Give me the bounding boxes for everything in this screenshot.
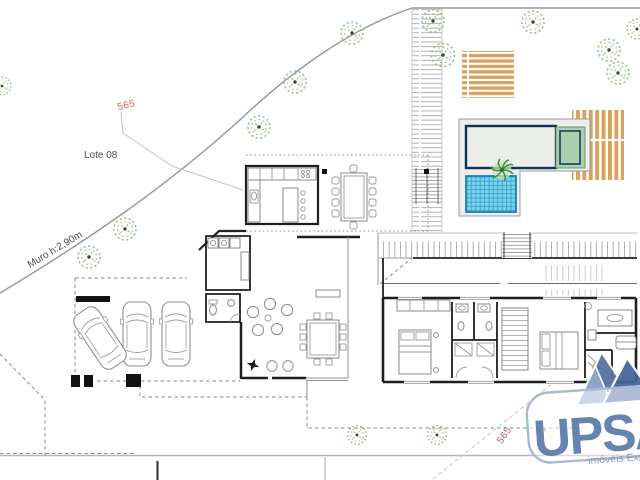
dining-table [300,313,346,365]
column [424,169,429,174]
terrace-band [378,232,637,296]
wood-deck-top [462,51,514,98]
lot-label: Lote 08 [84,150,118,161]
car [68,302,131,374]
gourmet-dining-table [332,165,376,229]
street-number-top: 565 [116,98,136,113]
tree-icon [598,39,620,61]
parked-cars [68,302,192,374]
walkway-strip [412,9,442,233]
site-plan-drawing: 565 565 Lote 08 Muro h:2,90m UPSA imóvei… [0,0,640,480]
pool-area [459,51,624,216]
tree-icon [248,116,270,138]
wall-note: Muro h:2,90m [26,229,85,270]
column [71,375,80,387]
living-block [199,231,360,381]
stairs-terrace [502,232,532,258]
laundry-appliances [208,238,249,280]
tree-icon [78,246,100,268]
kitchen-wing [246,155,429,231]
column [322,169,327,174]
tree-icon [114,218,136,240]
tree-icon [607,62,629,84]
wall-stub [76,296,110,302]
tree-icon [0,77,11,95]
bed [397,300,450,374]
trees [0,10,640,444]
tree-icon [627,19,640,39]
tree-icon [284,71,306,93]
bathroom-fixtures [209,300,240,322]
column [126,374,141,387]
car [160,302,193,366]
column [84,375,93,387]
kids-pool [466,176,516,212]
tree-icon [522,11,544,33]
tree-icon [341,22,363,44]
plant-icon [245,357,261,373]
sideboard [316,290,340,297]
kitchen-counters [248,168,316,222]
bed [502,308,578,370]
tree-icon [428,426,447,445]
